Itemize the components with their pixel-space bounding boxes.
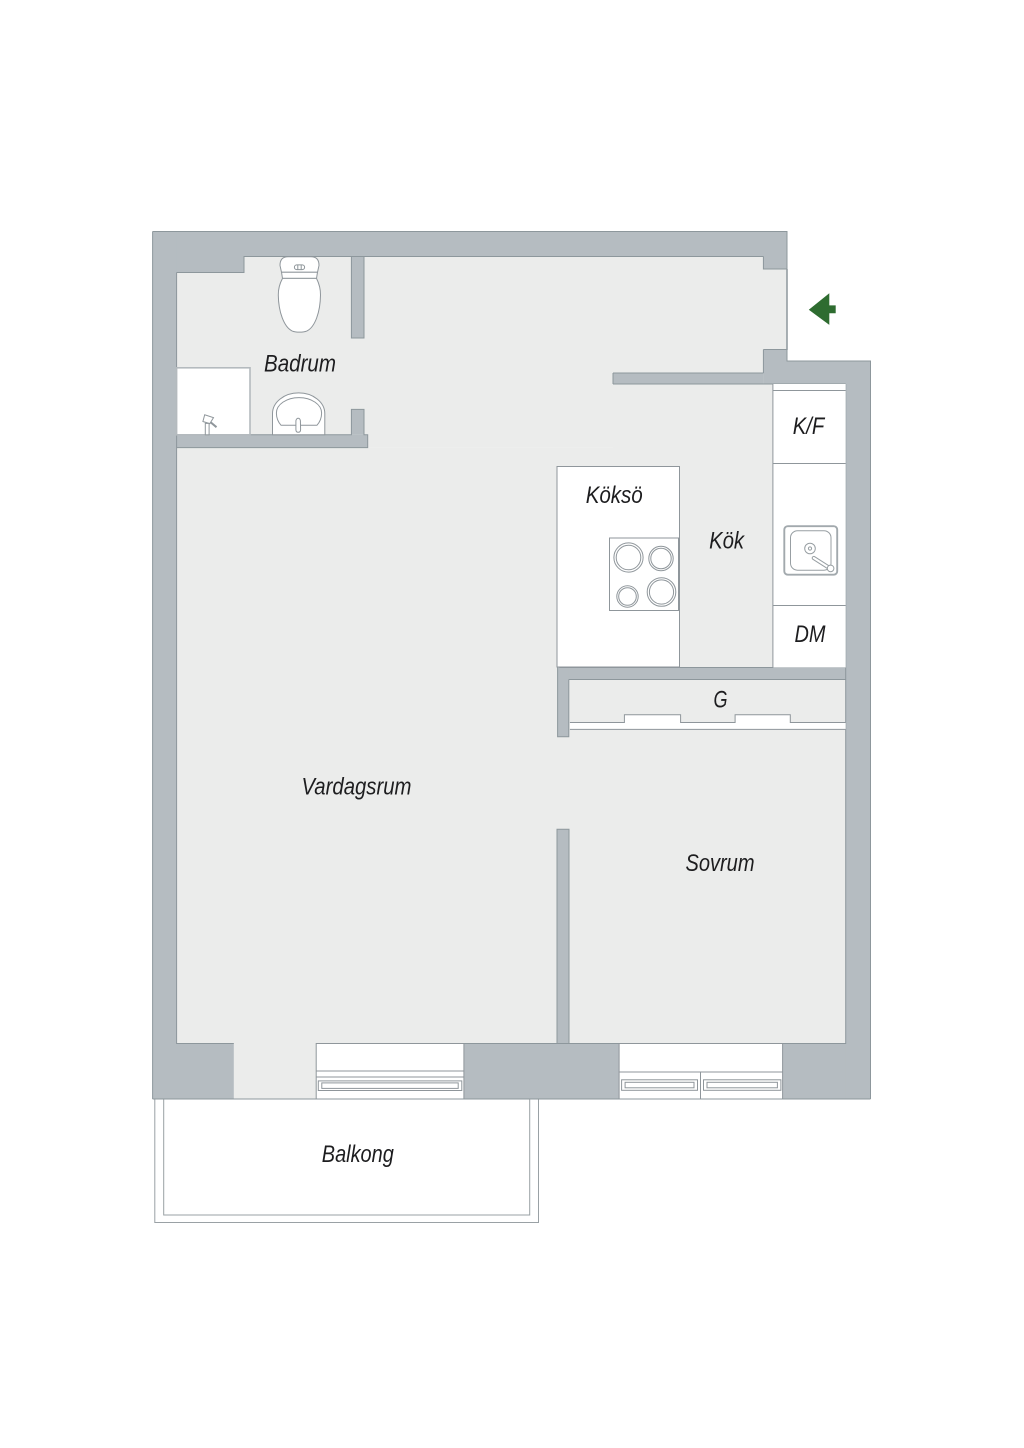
svg-text:K/F: K/F: [793, 413, 826, 440]
svg-text:Balkong: Balkong: [322, 1141, 395, 1168]
svg-text:Köksö: Köksö: [586, 482, 643, 509]
svg-text:Kök: Kök: [709, 528, 746, 555]
svg-text:DM: DM: [795, 621, 826, 648]
svg-text:Badrum: Badrum: [264, 351, 336, 378]
svg-text:Sovrum: Sovrum: [686, 850, 755, 877]
svg-text:G: G: [714, 687, 728, 714]
svg-text:Vardagsrum: Vardagsrum: [302, 774, 412, 801]
